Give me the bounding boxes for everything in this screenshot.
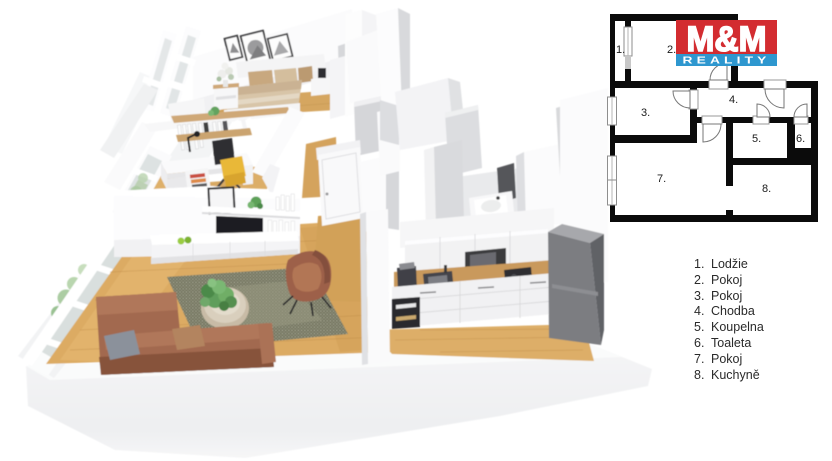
svg-text:1.: 1.: [616, 44, 625, 56]
svg-text:3.Pokoj: 3.Pokoj: [694, 289, 742, 303]
svg-text:6.: 6.: [796, 133, 805, 145]
svg-text:6.Toaleta: 6.Toaleta: [694, 336, 751, 350]
svg-text:4.Chodba: 4.Chodba: [694, 304, 755, 318]
svg-text:M&M: M&M: [687, 20, 767, 59]
svg-text:4.: 4.: [729, 94, 738, 106]
svg-text:3.: 3.: [641, 107, 650, 119]
svg-text:2.: 2.: [667, 44, 676, 56]
svg-text:REALITY: REALITY: [683, 56, 771, 67]
svg-text:8.Kuchyně: 8.Kuchyně: [694, 368, 760, 382]
svg-text:7.Pokoj: 7.Pokoj: [694, 352, 742, 366]
svg-text:5.: 5.: [752, 133, 761, 145]
svg-text:8.: 8.: [762, 183, 771, 195]
svg-text:2.Pokoj: 2.Pokoj: [694, 273, 742, 287]
svg-text:7.: 7.: [657, 173, 666, 185]
svg-text:1.Lodžie: 1.Lodžie: [694, 257, 748, 271]
